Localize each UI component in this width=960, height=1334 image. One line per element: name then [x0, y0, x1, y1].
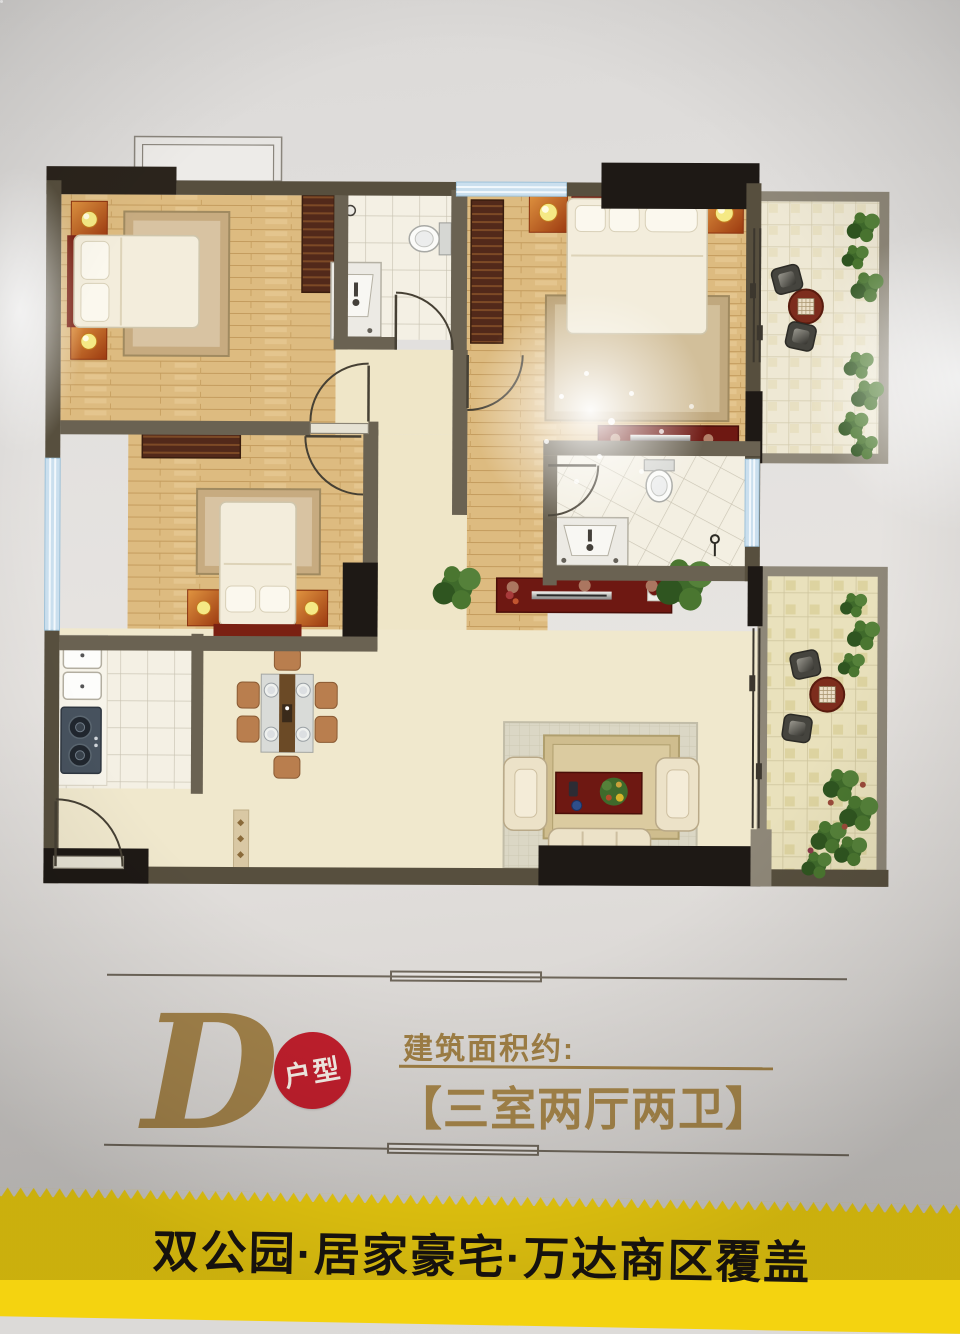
poster-photo: { "poster": { "unit_letter": "D", "unit_… [0, 0, 960, 1280]
photo-vignette [0, 0, 960, 1280]
